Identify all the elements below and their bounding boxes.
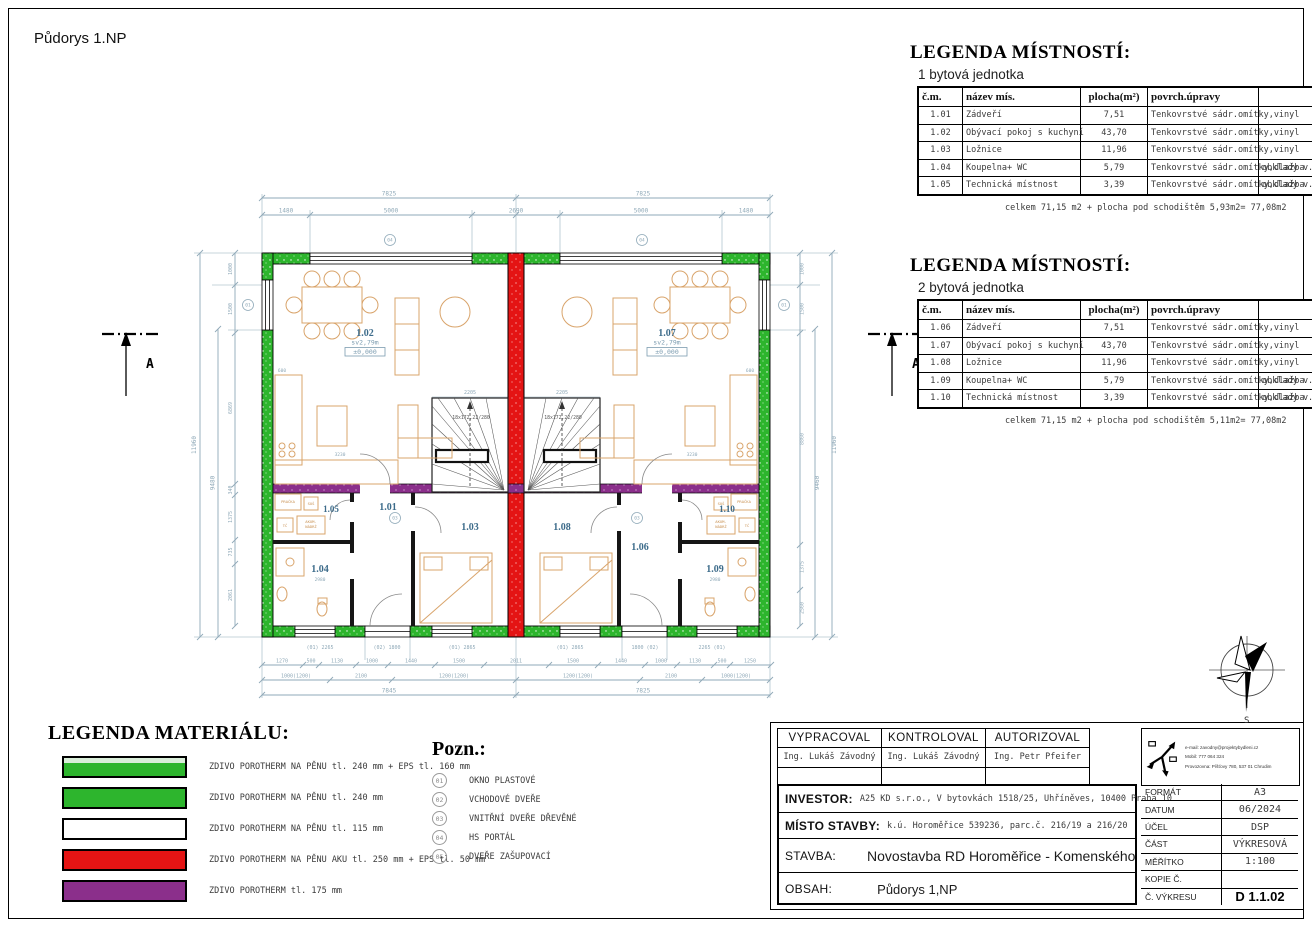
note-item: 04 HS PORTÁL [432, 828, 576, 847]
svg-text:TČ: TČ [745, 523, 750, 528]
table-row: 1.04 Koupelna+ WC 5,79 Tenkovrstvé sádr.… [918, 159, 1312, 177]
svg-text:340: 340 [228, 485, 234, 494]
signature-name: Ing. Lukáš Závodný [882, 748, 985, 768]
company-logo-icon [1142, 735, 1182, 779]
svg-text:2100: 2100 [665, 674, 677, 680]
svg-text:18x172,22/280: 18x172,22/280 [452, 415, 490, 421]
svg-text:5000: 5000 [384, 208, 399, 215]
note-item: 05 DVEŘE ZAŠUPOVACÍ [432, 847, 576, 866]
company-contact: e-mail: zavodny@projektybydleni.cz Mobil… [1185, 743, 1272, 772]
material-swatch [62, 787, 187, 809]
svg-text:PRAČKA: PRAČKA [281, 499, 295, 504]
material-item: ZDIVO POROTHERM NA PĚNU tl. 240 mm + EPS… [62, 755, 485, 778]
svg-text:1500: 1500 [567, 659, 579, 665]
info-field-value: D 1.1.02 [1222, 889, 1298, 905]
party-wall-red [508, 253, 524, 637]
svg-text:(01) 2265: (01) 2265 [306, 645, 333, 651]
info-field-value: VÝKRESOVÁ [1222, 836, 1298, 852]
signature-table: VYPRACOVAL Ing. Lukáš Závodný KONTROLOVA… [777, 728, 1090, 786]
table-row: 1.08 Ložnice 11,96 Tenkovrstvé sádr.omít… [918, 355, 1312, 373]
notes: Pozn.: 01 OKNO PLASTOVÉ 02 VCHODOVÉ DVEŘ… [432, 738, 576, 866]
svg-text:2100: 2100 [355, 674, 367, 680]
info-field-value [1222, 871, 1298, 887]
svg-text:1500: 1500 [228, 303, 234, 315]
table-row: 1.02 Obývací pokoj s kuchyní 43,70 Tenko… [918, 124, 1312, 142]
svg-text:1000(1200): 1000(1200) [721, 674, 751, 680]
svg-text:1270: 1270 [276, 659, 288, 665]
room-legend-1: LEGENDA MÍSTNOSTÍ: 1 bytová jednotka č.m… [910, 42, 1290, 213]
info-field-row: ČÁST VÝKRESOVÁ [1141, 836, 1298, 853]
svg-text:2690: 2690 [509, 208, 524, 215]
svg-text:01: 01 [245, 303, 251, 309]
svg-text:2560: 2560 [800, 602, 806, 614]
material-item: ZDIVO POROTHERM NA PĚNU tl. 240 mm [62, 786, 485, 809]
info-field-value: 1:100 [1222, 854, 1298, 870]
svg-text:2205: 2205 [464, 390, 476, 396]
material-legend: LEGENDA MATERIÁLU: ZDIVO POROTHERM NA PĚ… [48, 722, 485, 910]
legend-total: celkem 71,15 m2 + plocha pod schodištěm … [1005, 416, 1290, 426]
obsah-row: OBSAH: Půdorys 1,NP [779, 873, 1135, 905]
svg-text:(02) 1800: (02) 1800 [373, 645, 400, 651]
title-block-main: INVESTOR: A25 KD s.r.o., V bytovkách 151… [777, 784, 1137, 905]
svg-text:3230: 3230 [335, 452, 346, 458]
investor-row: INVESTOR: A25 KD s.r.o., V bytovkách 151… [779, 786, 1135, 813]
svg-text:1000(1200): 1000(1200) [281, 674, 311, 680]
contact-address: Provozovna: Píšťovy 780, 537 01 Chrudim [1185, 762, 1272, 772]
eps-strip [64, 758, 185, 763]
legend-subtitle: 1 bytová jednotka [918, 67, 1290, 82]
material-swatch [62, 849, 187, 871]
staircase-right: 18x172,22/280 [524, 398, 600, 492]
section-marker-left: A [100, 322, 164, 402]
svg-text:11960: 11960 [831, 436, 838, 454]
svg-text:7825: 7825 [636, 191, 651, 198]
info-field-label: MĚŘÍTKO [1141, 854, 1222, 870]
svg-text:1.05: 1.05 [323, 504, 339, 514]
signature-label: VYPRACOVAL [778, 729, 881, 748]
legend-title: LEGENDA MÍSTNOSTÍ: [910, 42, 1290, 64]
eps-strip [64, 882, 185, 887]
material-swatch [62, 818, 187, 840]
table-row: 1.07 Obývací pokoj s kuchyní 43,70 Tenko… [918, 337, 1312, 355]
legend-total: celkem 71,15 m2 + plocha pod schodištěm … [1005, 203, 1290, 213]
svg-text:600: 600 [278, 368, 286, 374]
title-block: VYPRACOVAL Ing. Lukáš Závodný KONTROLOVA… [770, 722, 1304, 910]
svg-text:2061: 2061 [228, 589, 234, 601]
svg-text:±0,000: ±0,000 [353, 348, 377, 356]
eps-strip [64, 789, 185, 794]
svg-text:04: 04 [387, 238, 393, 244]
contact-email: e-mail: zavodny@projektybydleni.cz [1185, 743, 1272, 753]
svg-text:04: 04 [639, 238, 645, 244]
svg-text:1.10: 1.10 [719, 504, 735, 514]
note-label: HS PORTÁL [469, 833, 515, 843]
info-field-row: DATUM 06/2024 [1141, 801, 1298, 818]
info-field-row: MĚŘÍTKO 1:100 [1141, 854, 1298, 871]
svg-text:1440: 1440 [615, 659, 627, 665]
svg-text:600: 600 [746, 368, 754, 374]
info-field-value: DSP [1222, 819, 1298, 835]
drawing-info-fields: FORMÁT A3 DATUM 06/2024 ÚČEL DSP ČÁST VÝ… [1141, 784, 1298, 905]
svg-text:01: 01 [781, 303, 787, 309]
material-swatch [62, 756, 187, 778]
info-field-value: A3 [1222, 784, 1298, 800]
svg-text:1130: 1130 [689, 659, 701, 665]
svg-text:7825: 7825 [636, 688, 651, 695]
svg-text:500: 500 [306, 659, 315, 665]
signature-name: Ing. Petr Pfeifer [986, 748, 1089, 768]
material-label: ZDIVO POROTHERM NA PĚNU tl. 240 mm [209, 793, 383, 803]
notes-title: Pozn.: [432, 738, 576, 761]
svg-text:1375: 1375 [800, 561, 806, 573]
material-legend-title: LEGENDA MATERIÁLU: [48, 722, 485, 745]
note-item: 01 OKNO PLASTOVÉ [432, 771, 576, 790]
svg-text:1.02: 1.02 [356, 328, 374, 339]
company-logo-box: e-mail: zavodny@projektybydleni.cz Mobil… [1141, 728, 1300, 786]
svg-text:03: 03 [392, 516, 398, 522]
signature-col-kontroloval: KONTROLOVAL Ing. Lukáš Závodný [882, 729, 986, 785]
svg-text:500: 500 [717, 659, 726, 665]
signature-label: AUTORIZOVAL [986, 729, 1089, 748]
table-row: 1.10 Technická místnost 3,39 Tenkovrstvé… [918, 390, 1312, 408]
page-title: Půdorys 1.NP [34, 30, 127, 47]
svg-text:1.03: 1.03 [461, 522, 479, 533]
stavba-value: Novostavba RD Horoměřice - Komenského [867, 848, 1135, 864]
svg-text:7825: 7825 [382, 191, 397, 198]
svg-text:1000: 1000 [800, 263, 806, 275]
room-table: č.m. název mís. plocha(m²) povrch.úpravy… [917, 299, 1312, 409]
svg-text:NÁDRŽ: NÁDRŽ [715, 524, 727, 529]
svg-text:1375: 1375 [228, 511, 234, 523]
svg-text:NÁDRŽ: NÁDRŽ [305, 524, 317, 529]
svg-text:1.07: 1.07 [658, 328, 676, 339]
table-row: 1.09 Koupelna+ WC 5,79 Tenkovrstvé sádr.… [918, 372, 1312, 390]
svg-text:1.09: 1.09 [706, 564, 724, 575]
investor-value: A25 KD s.r.o., V bytovkách 1518/25, Uhří… [860, 794, 1172, 804]
legend-subtitle: 2 bytová jednotka [918, 280, 1290, 295]
note-item: 02 VCHODOVÉ DVEŘE [432, 790, 576, 809]
floor-plan: 7825 7825 1480 5000 2690 5000 1480 11960… [170, 160, 870, 720]
material-item: ZDIVO POROTHERM NA PĚNU tl. 115 mm [62, 817, 485, 840]
svg-text:735: 735 [228, 547, 234, 556]
svg-text:A: A [146, 357, 154, 372]
material-swatch [62, 880, 187, 902]
eps-strip [64, 851, 185, 856]
svg-text:03: 03 [634, 516, 640, 522]
legend-title: LEGENDA MÍSTNOSTÍ: [910, 255, 1290, 277]
compass-rose: S [1205, 628, 1290, 726]
note-number-badge: 04 [432, 830, 447, 845]
material-item: ZDIVO POROTHERM NA PĚNU AKU tl. 250 mm +… [62, 848, 485, 871]
signature-col-vypracoval: VYPRACOVAL Ing. Lukáš Závodný [778, 729, 882, 785]
misto-stavby-value: k.ú. Horoměřice 539236, parc.č. 216/19 a… [887, 821, 1128, 831]
info-field-label: ČÁST [1141, 836, 1222, 852]
eps-strip [64, 820, 185, 825]
svg-text:5000: 5000 [634, 208, 649, 215]
note-label: OKNO PLASTOVÉ [469, 776, 536, 786]
svg-text:1480: 1480 [279, 208, 294, 215]
svg-text:3230: 3230 [687, 452, 698, 458]
room-legend-2: LEGENDA MÍSTNOSTÍ: 2 bytová jednotka č.m… [910, 255, 1290, 426]
table-row: 1.01 Zádveří 7,51 Tenkovrstvé sádr.omítk… [918, 107, 1312, 125]
svg-text:1000: 1000 [366, 659, 378, 665]
svg-text:sv2,79m: sv2,79m [653, 339, 680, 347]
room-table: č.m. název mís. plocha(m²) povrch.úpravy… [917, 86, 1312, 196]
svg-text:1200(1200): 1200(1200) [439, 674, 469, 680]
info-field-label: Č. VÝKRESU [1141, 889, 1222, 905]
svg-text:1480: 1480 [739, 208, 754, 215]
svg-text:±0,000: ±0,000 [655, 348, 679, 356]
info-field-value: 06/2024 [1222, 801, 1298, 817]
note-label: VCHODOVÉ DVEŘE [469, 795, 541, 805]
svg-text:18x172,22/280: 18x172,22/280 [544, 415, 582, 421]
svg-text:1130: 1130 [331, 659, 343, 665]
stavba-label: STAVBA: [785, 849, 836, 863]
note-number-badge: 02 [432, 792, 447, 807]
compass-label: S [1244, 716, 1249, 726]
svg-text:8860: 8860 [800, 433, 806, 445]
info-field-label: KOPIE Č. [1141, 871, 1222, 887]
svg-text:1500: 1500 [800, 303, 806, 315]
svg-text:sv2,79m: sv2,79m [351, 339, 378, 347]
svg-text:7845: 7845 [382, 688, 397, 695]
svg-text:6869: 6869 [228, 402, 234, 414]
svg-text:2011: 2011 [510, 659, 522, 665]
note-label: DVEŘE ZAŠUPOVACÍ [469, 852, 551, 862]
material-label: ZDIVO POROTHERM NA PĚNU tl. 115 mm [209, 824, 383, 834]
svg-text:9480: 9480 [210, 475, 217, 490]
svg-text:1800 (02): 1800 (02) [631, 645, 658, 651]
misto-stavby-row: MÍSTO STAVBY: k.ú. Horoměřice 539236, pa… [779, 813, 1135, 839]
svg-text:TČ: TČ [283, 523, 288, 528]
staircase-left: 18x172,22/280 [432, 398, 508, 492]
svg-text:2980: 2980 [315, 577, 326, 583]
svg-text:1440: 1440 [405, 659, 417, 665]
info-field-row: ÚČEL DSP [1141, 819, 1298, 836]
misto-stavby-label: MÍSTO STAVBY: [785, 819, 880, 833]
info-field-label: DATUM [1141, 801, 1222, 817]
material-label: ZDIVO POROTHERM tl. 175 mm [209, 886, 342, 896]
table-row: 1.03 Ložnice 11,96 Tenkovrstvé sádr.omít… [918, 142, 1312, 160]
note-number-badge: 01 [432, 773, 447, 788]
svg-text:1000: 1000 [228, 263, 234, 275]
svg-text:2205: 2205 [556, 390, 568, 396]
svg-text:1.01: 1.01 [379, 502, 397, 513]
svg-text:1200(1200): 1200(1200) [563, 674, 593, 680]
svg-text:1250: 1250 [744, 659, 756, 665]
svg-text:1.06: 1.06 [631, 542, 649, 553]
material-item: ZDIVO POROTHERM tl. 175 mm [62, 879, 485, 902]
svg-text:2980: 2980 [710, 577, 721, 583]
signature-col-autorizoval: AUTORIZOVAL Ing. Petr Pfeifer [986, 729, 1089, 785]
note-number-badge: 05 [432, 849, 447, 864]
info-field-label: FORMÁT [1141, 784, 1222, 800]
material-label: ZDIVO POROTHERM NA PĚNU tl. 240 mm + EPS… [209, 762, 470, 772]
interior-wall-purple [273, 483, 759, 494]
svg-text:PRAČKA: PRAČKA [737, 499, 751, 504]
contact-phone: Mobil: 777 064 324 [1185, 752, 1272, 762]
svg-text:2265 (01): 2265 (01) [698, 645, 725, 651]
svg-text:1.08: 1.08 [553, 522, 571, 533]
obsah-value: Půdorys 1,NP [877, 882, 957, 897]
svg-text:1.04: 1.04 [311, 564, 329, 575]
svg-text:1500: 1500 [453, 659, 465, 665]
signature-label: KONTROLOVAL [882, 729, 985, 748]
info-field-row: FORMÁT A3 [1141, 784, 1298, 801]
note-number-badge: 03 [432, 811, 447, 826]
table-row: 1.06 Zádveří 7,51 Tenkovrstvé sádr.omítk… [918, 320, 1312, 338]
table-row: 1.05 Technická místnost 3,39 Tenkovrstvé… [918, 177, 1312, 195]
svg-text:1000: 1000 [655, 659, 667, 665]
note-label: VNITŘNÍ DVEŘE DŘEVĚNÉ [469, 814, 576, 824]
svg-text:SUŠ: SUŠ [308, 501, 316, 506]
stavba-row: STAVBA: Novostavba RD Horoměřice - Komen… [779, 839, 1135, 873]
obsah-label: OBSAH: [785, 882, 832, 896]
info-field-label: ÚČEL [1141, 819, 1222, 835]
svg-text:9460: 9460 [814, 475, 821, 490]
info-field-row: KOPIE Č. [1141, 871, 1298, 888]
svg-text:(01) 2865: (01) 2865 [556, 645, 583, 651]
signature-name: Ing. Lukáš Závodný [778, 748, 881, 768]
investor-label: INVESTOR: [785, 792, 853, 806]
info-field-row: Č. VÝKRESU D 1.1.02 [1141, 889, 1298, 905]
svg-text:11960: 11960 [191, 436, 198, 454]
note-item: 03 VNITŘNÍ DVEŘE DŘEVĚNÉ [432, 809, 576, 828]
svg-text:(01) 2865: (01) 2865 [448, 645, 475, 651]
